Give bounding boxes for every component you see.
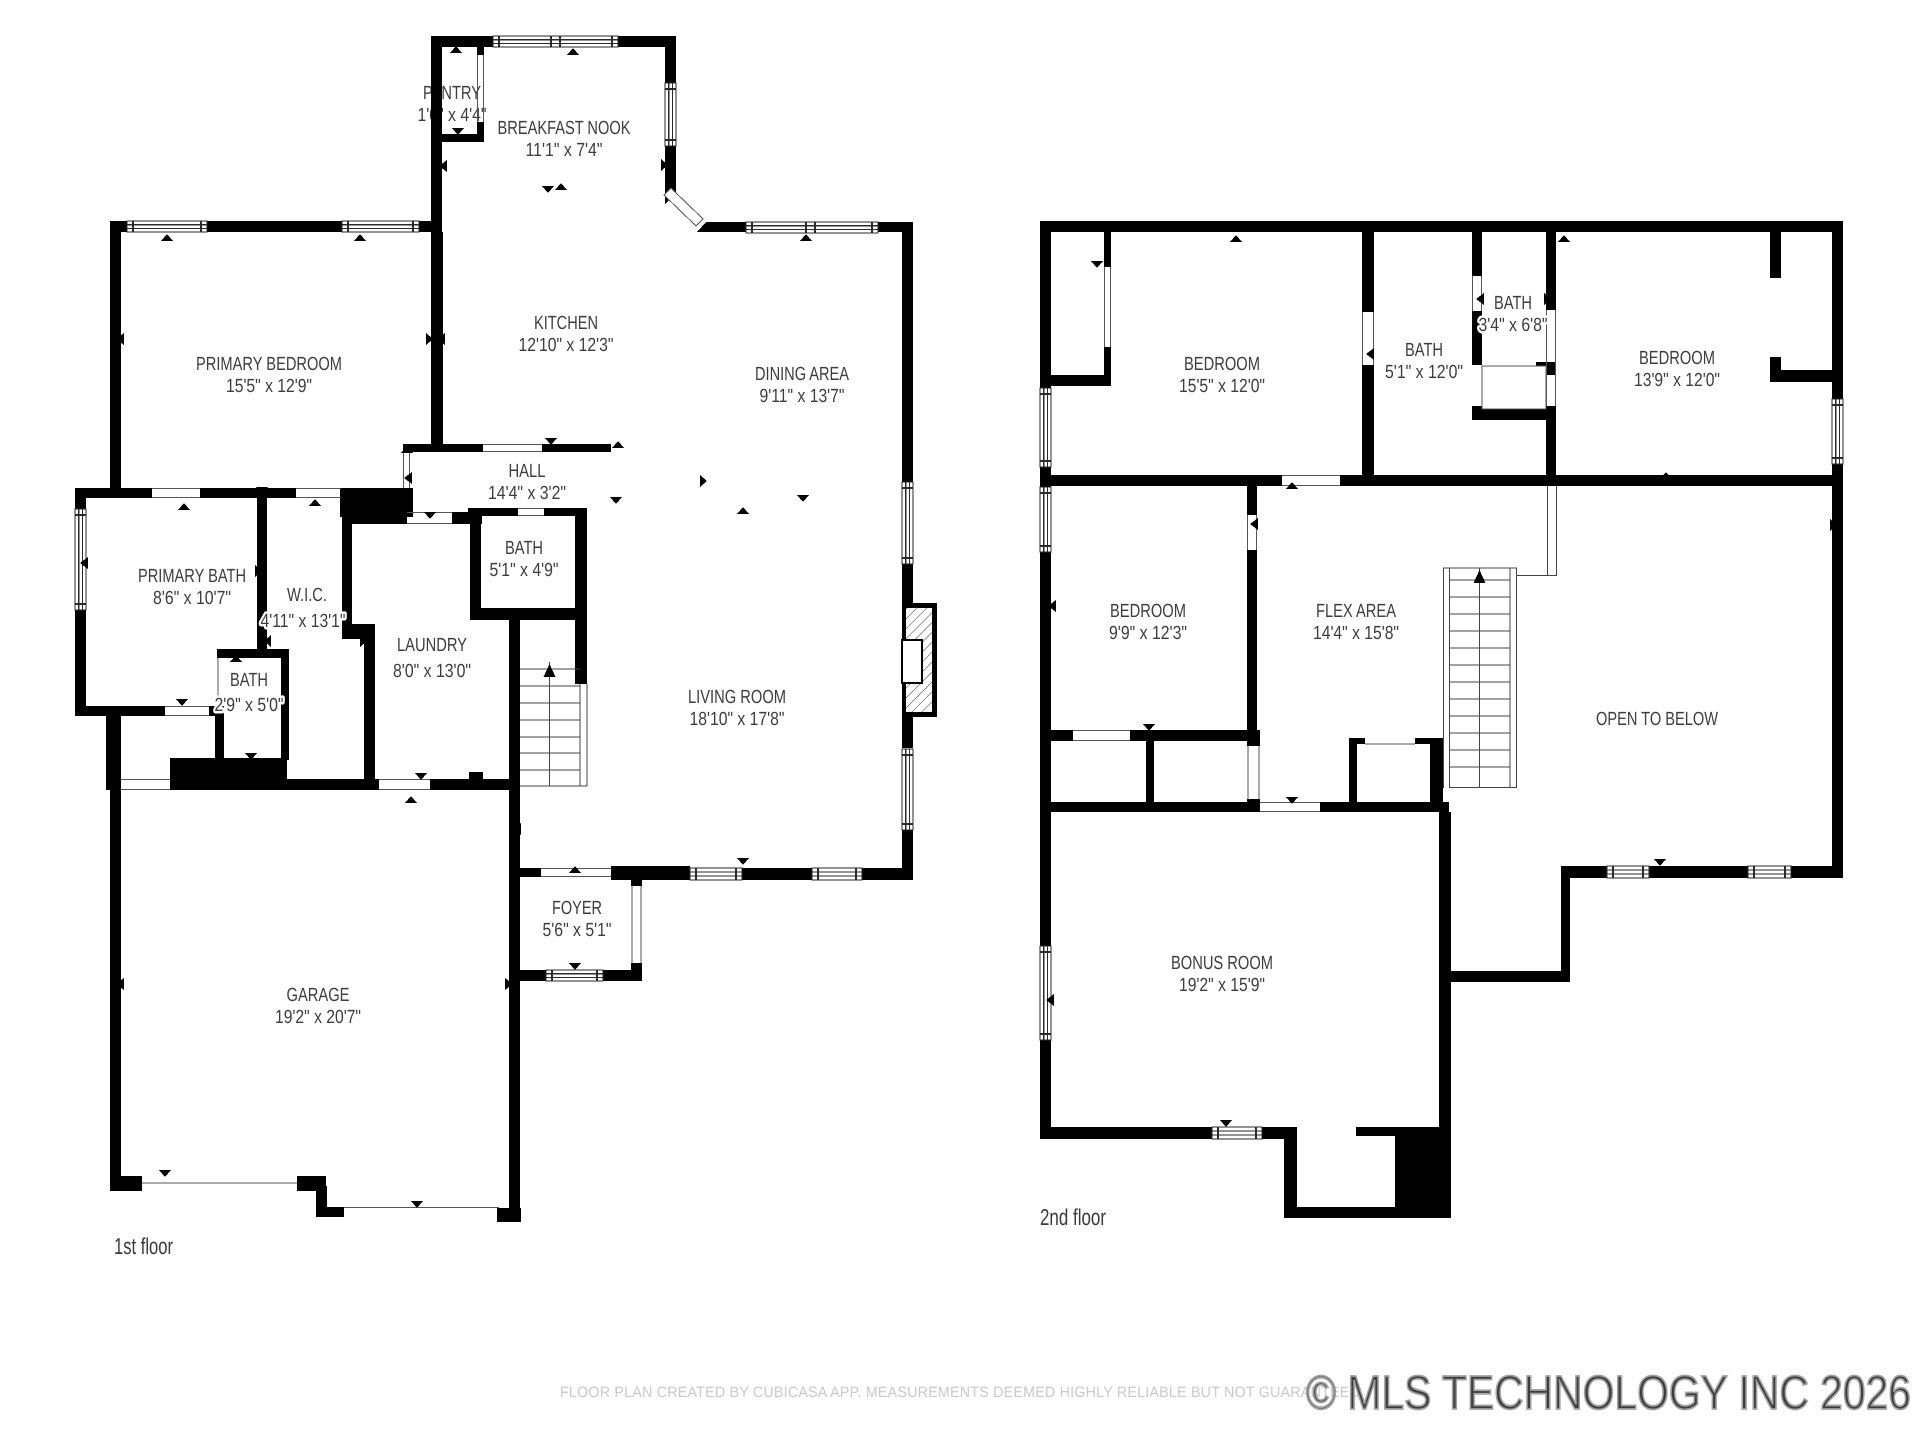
svg-text:4'11" x 13'1": 4'11" x 13'1" [261,611,346,632]
svg-text:BATH: BATH [1405,340,1443,361]
svg-text:18'10" x 17'8": 18'10" x 17'8" [690,709,785,730]
svg-text:© MLS TECHNOLOGY INC 2026: © MLS TECHNOLOGY INC 2026 [1306,1367,1911,1420]
svg-text:3'4" x 6'8": 3'4" x 6'8" [1479,315,1548,336]
svg-text:9'11" x 13'7": 9'11" x 13'7" [760,386,845,407]
svg-text:BEDROOM: BEDROOM [1639,348,1715,369]
svg-text:2nd floor: 2nd floor [1040,1204,1106,1230]
svg-text:1st floor: 1st floor [114,1233,173,1259]
svg-text:DINING AREA: DINING AREA [755,364,849,385]
svg-text:13'9" x 12'0": 13'9" x 12'0" [1634,370,1720,391]
svg-text:11'1" x 7'4": 11'1" x 7'4" [526,140,603,161]
svg-text:BONUS ROOM: BONUS ROOM [1171,953,1273,974]
svg-text:KITCHEN: KITCHEN [534,313,598,334]
svg-text:OPEN TO BELOW: OPEN TO BELOW [1596,709,1718,730]
svg-text:19'2" x 15'9": 19'2" x 15'9" [1179,975,1265,996]
svg-text:BATH: BATH [1494,293,1532,314]
svg-text:W.I.C.: W.I.C. [287,585,327,606]
svg-text:15'5" x 12'0": 15'5" x 12'0" [1179,376,1265,397]
svg-text:LAUNDRY: LAUNDRY [397,635,467,656]
svg-text:14'4" x 3'2": 14'4" x 3'2" [488,483,566,504]
svg-text:BEDROOM: BEDROOM [1110,601,1186,622]
svg-text:8'0" x 13'0": 8'0" x 13'0" [393,661,471,682]
svg-text:19'2" x 20'7": 19'2" x 20'7" [275,1007,361,1028]
svg-text:BATH: BATH [505,538,543,559]
svg-text:FLOOR PLAN CREATED BY CUBICASA: FLOOR PLAN CREATED BY CUBICASA APP. MEAS… [560,1384,1360,1401]
svg-text:BATH: BATH [230,670,268,691]
svg-text:8'6" x 10'7": 8'6" x 10'7" [153,588,231,609]
svg-text:PRIMARY BATH: PRIMARY BATH [138,566,246,587]
svg-text:2'9" x 5'0": 2'9" x 5'0" [215,695,284,716]
svg-text:9'9" x 12'3": 9'9" x 12'3" [1109,623,1187,644]
svg-text:BREAKFAST NOOK: BREAKFAST NOOK [498,118,631,139]
svg-text:5'1" x 4'9": 5'1" x 4'9" [490,560,559,581]
svg-text:5'1" x 12'0": 5'1" x 12'0" [1385,362,1463,383]
svg-text:HALL: HALL [509,461,546,482]
svg-text:BEDROOM: BEDROOM [1184,354,1260,375]
svg-text:FOYER: FOYER [552,898,602,919]
svg-text:1'0" x 4'4": 1'0" x 4'4" [418,105,487,126]
svg-text:FLEX AREA: FLEX AREA [1316,601,1396,622]
svg-text:LIVING ROOM: LIVING ROOM [688,687,786,708]
svg-text:12'10" x 12'3": 12'10" x 12'3" [519,335,614,356]
svg-text:14'4" x 15'8": 14'4" x 15'8" [1313,623,1399,644]
svg-text:5'6" x 5'1": 5'6" x 5'1" [543,920,612,941]
svg-text:GARAGE: GARAGE [287,985,350,1006]
svg-text:15'5" x 12'9": 15'5" x 12'9" [226,376,312,397]
svg-text:PRIMARY BEDROOM: PRIMARY BEDROOM [196,354,342,375]
